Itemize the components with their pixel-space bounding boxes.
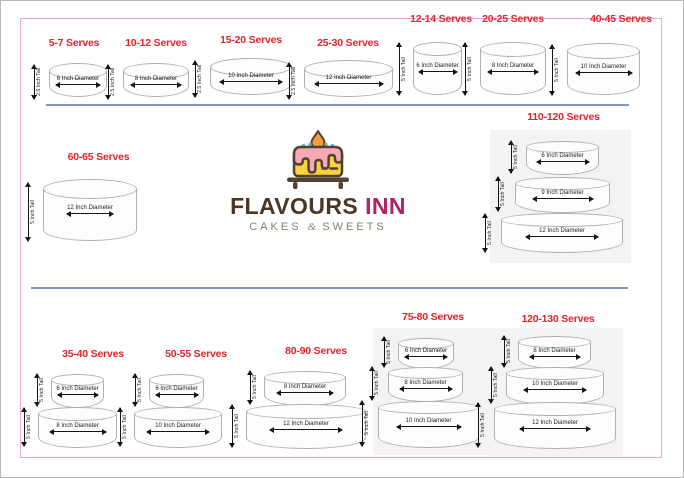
brand-name-primary: FLAVOURS [230, 193, 358, 219]
divider-bottom [31, 287, 628, 289]
brand-name-secondary: INN [365, 193, 406, 219]
cake-logo-icon [282, 129, 354, 193]
brand-tagline: CAKES & SWEETS [218, 222, 418, 233]
panel-75-80 [373, 328, 501, 455]
tagline-ampersand: & [308, 221, 317, 233]
panel-110-120 [490, 130, 631, 263]
divider-top [46, 104, 629, 106]
brand-logo: FLAVOURSINN CAKES & SWEETS [218, 129, 418, 233]
tagline-left: CAKES [249, 221, 301, 233]
panel-120-130 [489, 328, 623, 456]
tagline-right: SWEETS [322, 221, 386, 233]
cake-size-guide: 5-7 Serves 2.5 Inch Tall 6 Inch Diameter… [0, 0, 684, 478]
brand-name: FLAVOURSINN [218, 195, 418, 218]
